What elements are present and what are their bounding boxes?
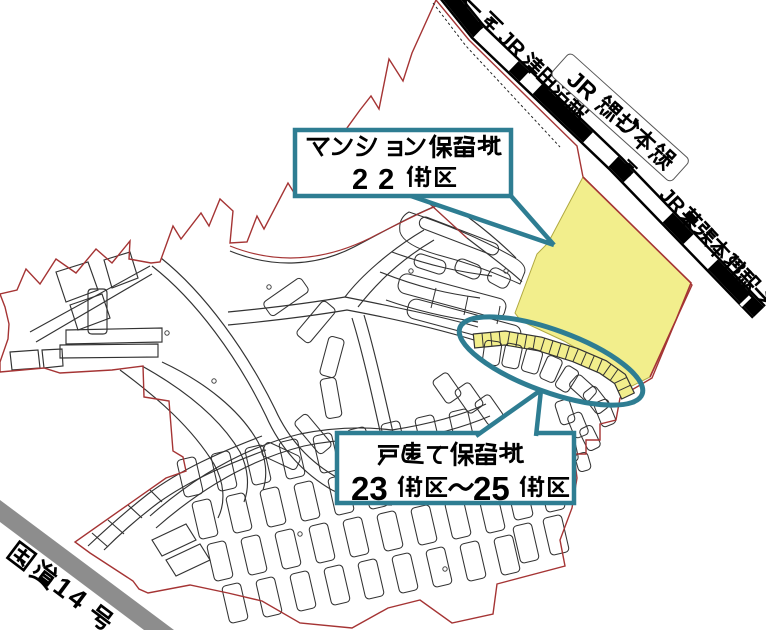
svg-text:22: 22	[352, 164, 404, 196]
svg-text:25: 25	[473, 470, 510, 507]
svg-text:23: 23	[351, 470, 388, 507]
